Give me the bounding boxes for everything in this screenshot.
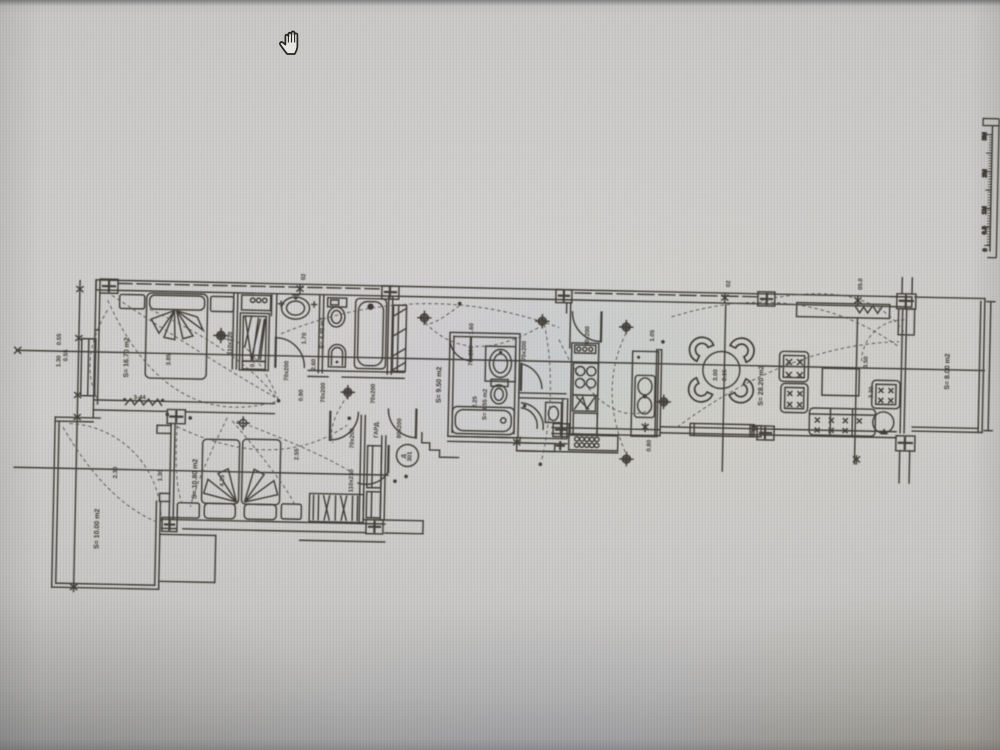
svg-text:0.55: 0.55 [63, 349, 69, 361]
svg-text:2.60: 2.60 [311, 358, 317, 370]
svg-text:70x200: 70x200 [321, 382, 327, 403]
svg-text:3.30: 3.30 [869, 386, 875, 398]
svg-text:05.0: 05.0 [858, 278, 864, 290]
svg-text:1M: 1M [982, 206, 988, 214]
svg-text:S= 8.00 m2: S= 8.00 m2 [944, 353, 952, 390]
svg-text:80x200: 80x200 [397, 418, 403, 439]
svg-text:S= 4.40 m2: S= 4.40 m2 [320, 317, 327, 349]
svg-text:2.55: 2.55 [294, 448, 300, 460]
svg-text:301: 301 [407, 451, 413, 462]
svg-text:S= 3.55 m2: S= 3.55 m2 [482, 388, 489, 420]
svg-text:1.30: 1.30 [56, 355, 62, 367]
svg-text:2.15: 2.15 [722, 369, 728, 381]
svg-text:110x230: 110x230 [349, 469, 355, 493]
svg-text:0.55: 0.55 [57, 333, 63, 345]
svg-text:1.05: 1.05 [650, 329, 656, 341]
svg-text:2.25: 2.25 [473, 395, 479, 407]
svg-text:70x200: 70x200 [284, 360, 290, 381]
svg-text:3.00: 3.00 [713, 369, 719, 381]
svg-text:ГАРД.: ГАРД. [374, 421, 380, 438]
svg-text:S= 9.50 m2: S= 9.50 m2 [436, 367, 444, 404]
svg-text:3.85: 3.85 [166, 353, 172, 365]
svg-text:2.30: 2.30 [113, 466, 119, 478]
svg-text:1.70: 1.70 [302, 332, 308, 344]
svg-text:0: 0 [983, 247, 989, 251]
svg-text:02: 02 [726, 280, 732, 287]
svg-text:70x200: 70x200 [468, 345, 474, 366]
svg-text:70x200: 70x200 [522, 340, 528, 361]
svg-text:02: 02 [301, 273, 307, 280]
svg-text:0.90: 0.90 [299, 389, 305, 401]
svg-text:S= 28.20 m2: S= 28.20 m2 [758, 365, 766, 406]
svg-text:3M: 3M [982, 132, 988, 140]
svg-text:70x200: 70x200 [350, 428, 356, 449]
svg-text:0.80: 0.80 [647, 439, 653, 451]
svg-text:0.5: 0.5 [982, 225, 988, 234]
svg-text:0.65: 0.65 [250, 355, 256, 367]
svg-text:70x200: 70x200 [371, 383, 377, 404]
svg-text:1.30: 1.30 [158, 469, 164, 481]
svg-text:110x220: 110x220 [228, 331, 234, 355]
svg-text:3.50: 3.50 [863, 356, 869, 368]
svg-text:S= 10.80 m2: S= 10.80 m2 [192, 459, 200, 500]
svg-text:2M: 2M [982, 169, 988, 177]
svg-text:S= 16.70 m2: S= 16.70 m2 [123, 337, 131, 378]
svg-text:S= 10.00 m2: S= 10.00 m2 [93, 509, 101, 550]
